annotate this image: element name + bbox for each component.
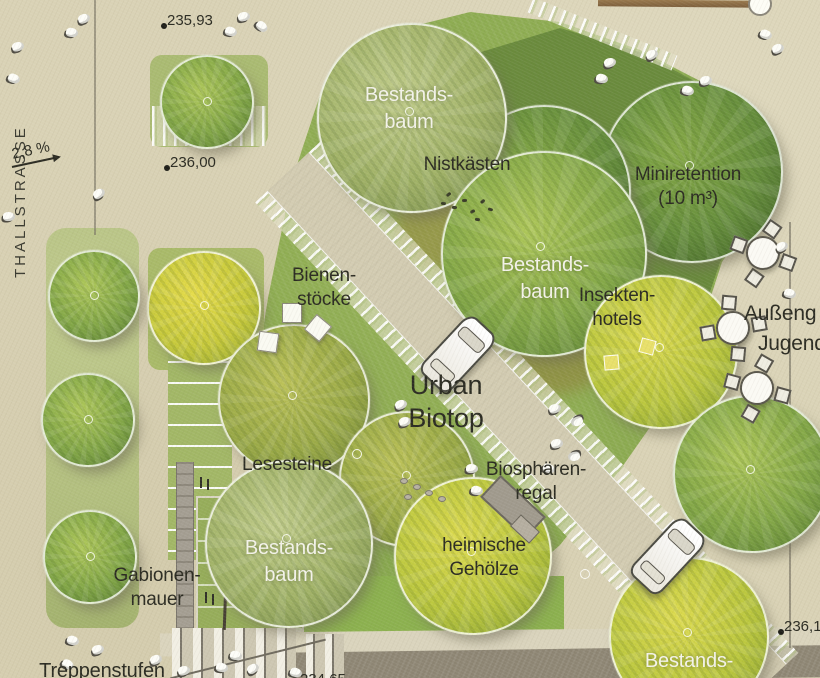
section-tick-marks xyxy=(200,477,212,489)
chair-icon xyxy=(720,294,736,310)
tree-center-marker xyxy=(288,391,297,400)
elevation-point-icon xyxy=(164,165,170,171)
label-bestandsbaum-center: Bestands- baum xyxy=(475,252,615,306)
existing-tree-topleft-small xyxy=(160,55,254,149)
bird-icon xyxy=(65,27,78,38)
label-bestandsbaum-bottomright: Bestands- xyxy=(619,648,759,675)
chair-icon xyxy=(699,324,716,341)
beehive-icon xyxy=(257,331,280,354)
label-bestandsbaum-left: Bestands- baum xyxy=(219,535,359,589)
bird-icon xyxy=(91,644,105,656)
tree-center-marker xyxy=(90,291,99,300)
elevation-label: 235,93 xyxy=(167,9,213,33)
elevation-point-icon xyxy=(778,629,784,635)
roof-edge xyxy=(598,0,760,8)
reading-stone-icon xyxy=(404,494,412,500)
label-bienenstoecke: Bienen- stöcke xyxy=(254,264,394,312)
label-bestandsbaum-top: Bestands- baum xyxy=(339,82,479,136)
tree-center-marker xyxy=(203,97,212,106)
bird-icon xyxy=(224,26,238,38)
bird-icon xyxy=(759,28,773,41)
scatter-mark xyxy=(452,206,457,209)
street-name-label: THALLSTRASSE xyxy=(12,0,29,278)
reading-stone-icon xyxy=(400,478,408,484)
elevation-label: 236,10 xyxy=(784,615,820,639)
label-urban-biotop: Urban Biotop xyxy=(386,369,506,435)
tree-left-row-2 xyxy=(41,373,135,467)
tree-center-marker xyxy=(683,628,692,637)
elevation-point-icon xyxy=(161,23,167,29)
tree-center-marker xyxy=(746,465,755,474)
tree-center-marker xyxy=(200,301,209,310)
label-gabionenmauer: Gabionen- mauer xyxy=(87,564,227,612)
tree-center-marker xyxy=(536,242,545,251)
chair-icon xyxy=(778,252,797,271)
tree-left-row-1 xyxy=(48,250,140,342)
bird-icon xyxy=(771,42,785,55)
label-biosphaerenregal: Biosphären- regal xyxy=(466,458,606,506)
label-heimische-gehoelze: heimische Gehölze xyxy=(414,534,554,582)
tree-center-marker xyxy=(84,415,93,424)
label-lesesteine: Lesesteine xyxy=(217,453,357,477)
bird-icon xyxy=(255,19,270,34)
scatter-mark xyxy=(441,202,446,205)
label-nistkaesten: Nistkästen xyxy=(397,153,537,177)
reading-stone-icon xyxy=(425,490,433,496)
elevation-label: 236,00 xyxy=(170,151,216,175)
reading-stone-icon xyxy=(438,496,446,502)
bird-icon xyxy=(77,12,91,25)
street-curb-line xyxy=(94,0,96,235)
elevation-label: 234,65 xyxy=(300,668,346,678)
scatter-mark xyxy=(462,199,467,202)
insect-hotel-icon xyxy=(603,354,619,370)
reading-stone-icon xyxy=(413,484,421,490)
label-treppenstufen: Treppenstufen xyxy=(27,659,177,678)
scatter-mark xyxy=(475,218,480,221)
bird-icon xyxy=(783,288,797,300)
landscape-plan: THALLSTRASSE 2,8 % 235,93 236,00 236,10 … xyxy=(0,0,820,678)
bird-icon xyxy=(66,635,80,647)
tree-center-marker xyxy=(655,343,664,352)
label-aussengelaende-jugend: Außeng Jugend xyxy=(744,299,820,359)
tree-center-marker xyxy=(86,552,95,561)
round-object xyxy=(748,0,772,16)
small-ring-marker xyxy=(580,569,590,579)
bird-icon xyxy=(237,11,250,22)
label-miniretention: Miniretention (10 m³) xyxy=(608,163,768,211)
